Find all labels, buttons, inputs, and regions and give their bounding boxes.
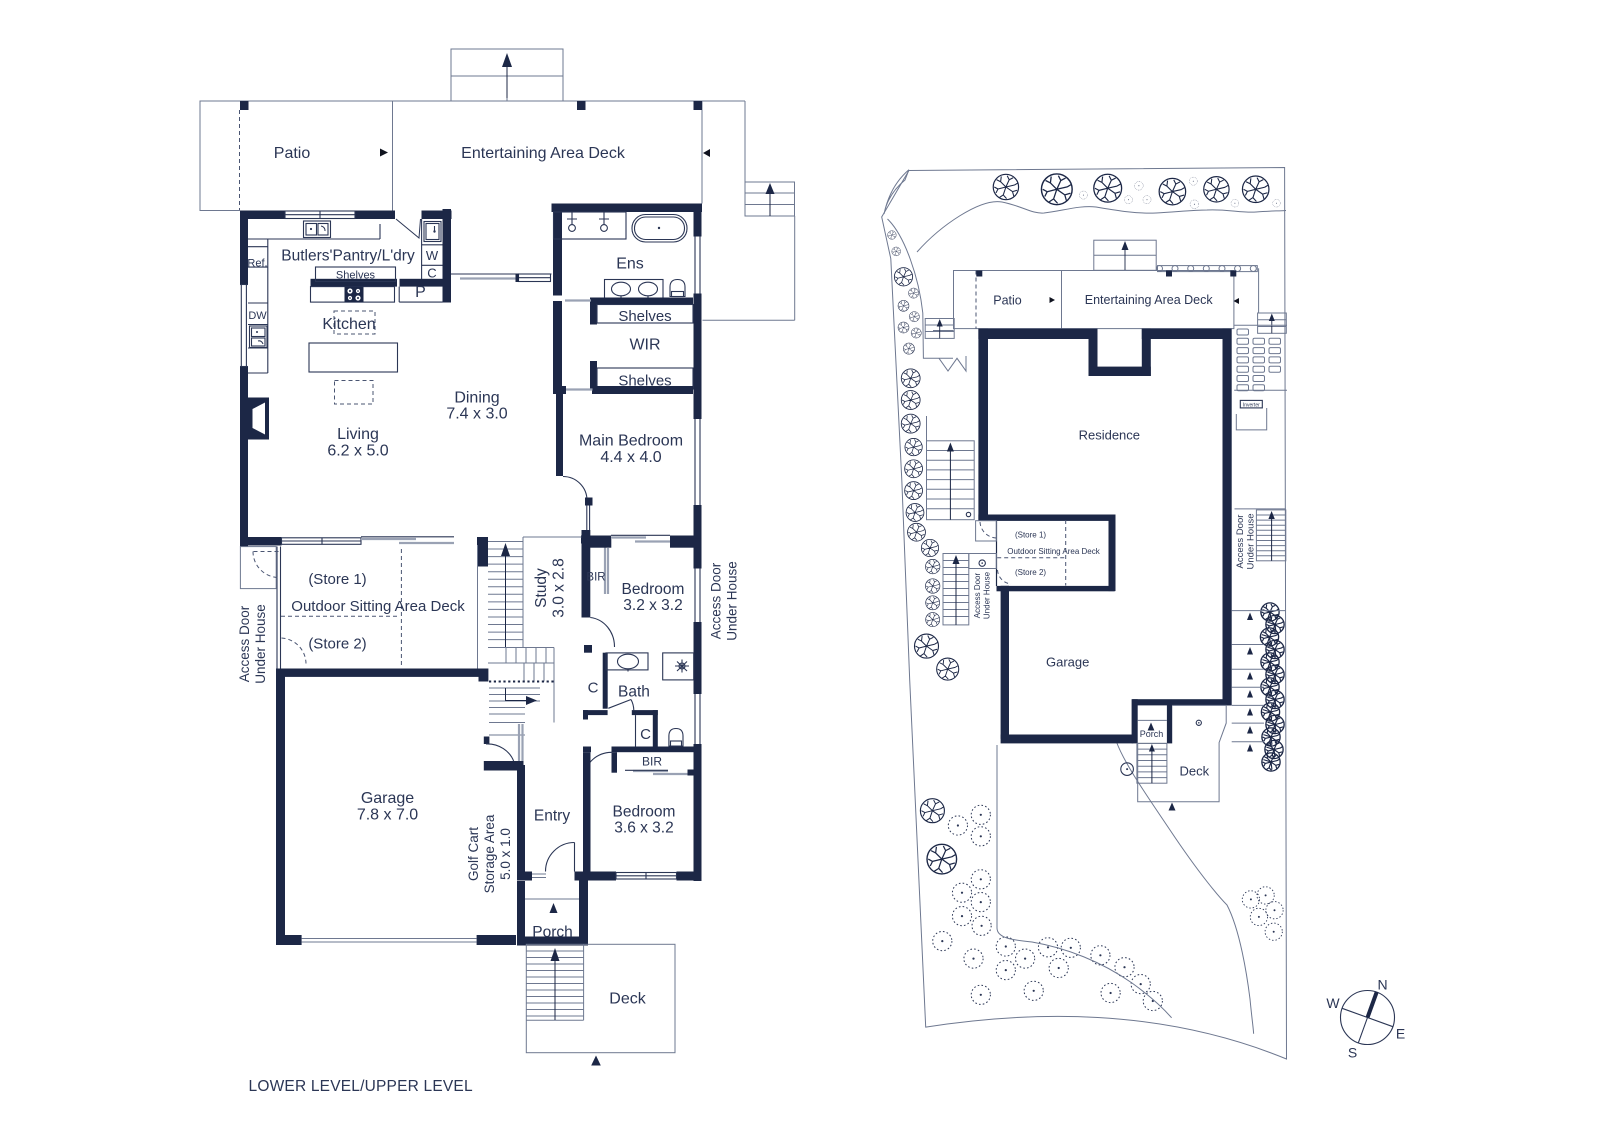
svg-text:Kitchen: Kitchen (322, 316, 375, 333)
svg-text:Ref.: Ref. (247, 258, 267, 270)
svg-text:Golf Cart: Golf Cart (466, 827, 481, 881)
svg-text:Bath: Bath (618, 684, 650, 701)
svg-text:6.2 x 5.0: 6.2 x 5.0 (327, 443, 388, 460)
svg-text:Patio: Patio (274, 145, 311, 162)
svg-text:Shelves: Shelves (618, 308, 671, 325)
svg-text:S: S (1348, 1045, 1357, 1061)
svg-text:(Store 1): (Store 1) (308, 571, 366, 588)
svg-text:BIR: BIR (586, 572, 605, 584)
svg-text:DW: DW (248, 310, 267, 322)
svg-text:Living: Living (337, 426, 379, 443)
svg-text:Storage Area: Storage Area (482, 814, 497, 893)
svg-text:Under House: Under House (1246, 514, 1257, 570)
svg-text:7.4 x 3.0: 7.4 x 3.0 (446, 406, 507, 423)
svg-text:Residence: Residence (1079, 428, 1140, 443)
svg-text:(Store 1): (Store 1) (1015, 531, 1046, 540)
svg-text:(Store 2): (Store 2) (1015, 568, 1046, 577)
svg-text:Garage: Garage (361, 790, 414, 807)
svg-text:Deck: Deck (1179, 764, 1209, 779)
svg-text:Bedroom: Bedroom (622, 581, 685, 598)
svg-text:Porch: Porch (1140, 729, 1164, 739)
svg-text:WIR: WIR (629, 337, 660, 354)
svg-text:Access Door: Access Door (237, 605, 252, 682)
svg-text:4.4 x 4.0: 4.4 x 4.0 (600, 449, 661, 466)
svg-text:Shelves: Shelves (618, 373, 671, 390)
svg-text:(Store 2): (Store 2) (308, 636, 366, 653)
svg-text:Outdoor Sitting Area Deck: Outdoor Sitting Area Deck (1007, 547, 1100, 556)
svg-text:W: W (426, 248, 439, 263)
svg-text:BIR: BIR (642, 755, 662, 769)
svg-text:7.8 x 7.0: 7.8 x 7.0 (357, 807, 418, 824)
svg-text:Butlers'Pantry/L'dry: Butlers'Pantry/L'dry (281, 248, 415, 265)
svg-text:Access Door: Access Door (1235, 515, 1246, 569)
svg-text:Access Door: Access Door (709, 562, 724, 639)
svg-text:Dining: Dining (454, 390, 499, 407)
svg-text:Bedroom: Bedroom (613, 804, 676, 821)
svg-text:Entertaining Area Deck: Entertaining Area Deck (1085, 293, 1214, 307)
svg-text:Main Bedroom: Main Bedroom (579, 433, 683, 450)
svg-text:W: W (1326, 995, 1340, 1011)
svg-text:Inverter: Inverter (1243, 402, 1260, 408)
svg-text:LOWER LEVEL/UPPER LEVEL: LOWER LEVEL/UPPER LEVEL (249, 1078, 473, 1095)
svg-text:Entertaining Area Deck: Entertaining Area Deck (461, 145, 626, 162)
svg-text:N: N (1377, 977, 1387, 993)
svg-text:Porch: Porch (532, 924, 573, 941)
svg-text:E: E (1396, 1026, 1405, 1042)
svg-text:C: C (588, 680, 599, 697)
svg-text:P: P (415, 284, 426, 301)
svg-text:Under House: Under House (725, 561, 740, 641)
svg-text:Access Door: Access Door (973, 572, 982, 618)
svg-text:3.0 x 2.8: 3.0 x 2.8 (551, 558, 568, 617)
svg-text:Entry: Entry (534, 808, 570, 825)
svg-text:Shelves: Shelves (336, 270, 376, 282)
svg-text:C: C (427, 266, 436, 281)
svg-text:C: C (640, 726, 651, 743)
svg-text:Patio: Patio (993, 294, 1022, 308)
svg-text:Ens: Ens (616, 256, 644, 273)
svg-text:3.6 x 3.2: 3.6 x 3.2 (614, 820, 673, 837)
svg-text:Outdoor Sitting Area Deck: Outdoor Sitting Area Deck (291, 598, 465, 615)
svg-text:Study: Study (533, 568, 550, 608)
svg-text:Under House: Under House (253, 604, 268, 684)
svg-text:5.0 x 1.0: 5.0 x 1.0 (498, 828, 513, 880)
svg-text:Under House: Under House (983, 571, 992, 619)
svg-text:Deck: Deck (609, 991, 646, 1008)
svg-text:Garage: Garage (1046, 655, 1089, 670)
svg-text:3.2 x 3.2: 3.2 x 3.2 (623, 597, 682, 614)
